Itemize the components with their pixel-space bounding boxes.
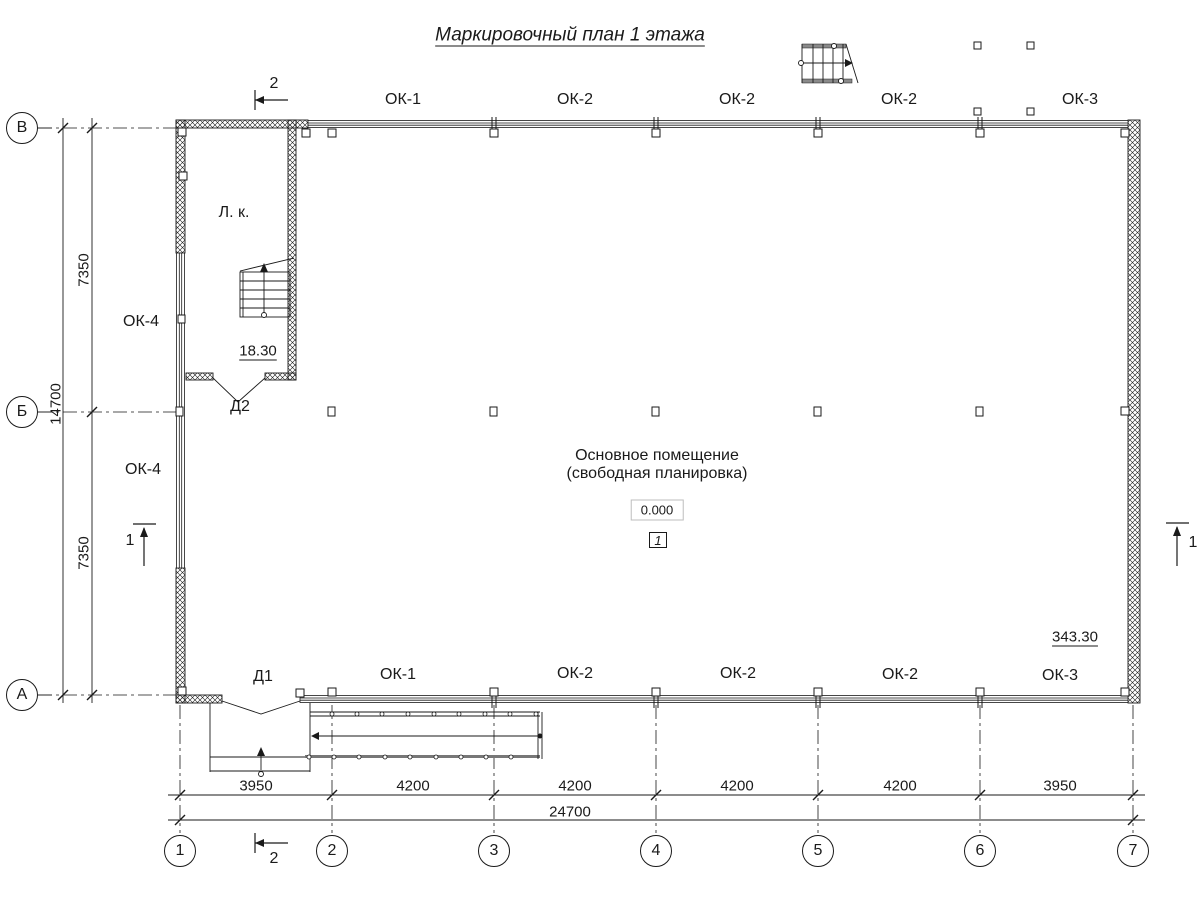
axis-bubble-6-label: 6	[976, 842, 985, 860]
window-label-top-5: ОК-3	[1062, 92, 1098, 108]
axis-bubble-1-label: 1	[176, 842, 185, 860]
dim-left-total: 14700	[49, 383, 64, 425]
window-label-bottom-1: ОК-1	[380, 667, 416, 683]
stair-room-area: 18.30	[239, 344, 277, 359]
axis-bubble-5-label: 5	[814, 842, 823, 860]
window-label-bottom-5: ОК-3	[1042, 668, 1078, 684]
axis-bubble-v-label: В	[17, 119, 28, 137]
dim-bottom-total: 24700	[549, 805, 591, 820]
drawing-title: Маркировочный план 1 этажа	[435, 26, 705, 45]
main-room-name-line2: (свободная планировка)	[567, 466, 748, 482]
main-room-name-line1: Основное помещение	[575, 448, 739, 464]
dim-bottom-1: 3950	[239, 779, 272, 794]
axis-bubble-4-label: 4	[652, 842, 661, 860]
axis-bubble-a-label: А	[17, 686, 28, 704]
axis-bubble-5: 5	[802, 835, 834, 867]
axis-bubble-2-label: 2	[328, 842, 337, 860]
window-label-top-1: ОК-1	[385, 92, 421, 108]
door-label-d1: Д1	[253, 669, 273, 685]
dim-bottom-5: 4200	[883, 779, 916, 794]
window-label-bottom-3: ОК-2	[720, 666, 756, 682]
column-markers	[176, 42, 1129, 697]
axis-bubble-a: А	[6, 679, 38, 711]
door-d1-swing	[222, 701, 300, 714]
window-label-left-1: ОК-4	[123, 314, 159, 330]
dim-bottom-2: 4200	[396, 779, 429, 794]
stair-detail-symbol	[799, 44, 859, 84]
axis-bubble-4: 4	[640, 835, 672, 867]
dim-bottom-4: 4200	[720, 779, 753, 794]
section-label-2-top: 2	[270, 76, 279, 92]
room-number: 1	[649, 532, 667, 548]
axis-bubble-3: 3	[478, 835, 510, 867]
elevation-mark: 0.000	[631, 500, 684, 521]
dim-left-1: 7350	[77, 253, 92, 286]
window-label-bottom-2: ОК-2	[557, 666, 593, 682]
axis-bubble-v: В	[6, 112, 38, 144]
window-label-left-2: ОК-4	[125, 462, 161, 478]
window-label-top-2: ОК-2	[557, 92, 593, 108]
axis-bubble-b: Б	[6, 396, 38, 428]
window-label-bottom-4: ОК-2	[882, 667, 918, 683]
window-label-top-3: ОК-2	[719, 92, 755, 108]
main-room-area: 343.30	[1052, 630, 1098, 645]
axis-bubble-7-label: 7	[1129, 842, 1138, 860]
stair-room-name: Л. к.	[219, 205, 250, 221]
section-label-1-right: 1	[1189, 535, 1198, 551]
section-label-1-left: 1	[126, 533, 135, 549]
axis-bubble-2: 2	[316, 835, 348, 867]
entrance-ramp	[305, 712, 543, 759]
axis-bubble-1: 1	[164, 835, 196, 867]
dim-bottom-3: 4200	[558, 779, 591, 794]
axis-bubble-6: 6	[964, 835, 996, 867]
dim-bottom-6: 3950	[1043, 779, 1076, 794]
dim-left-2: 7350	[77, 536, 92, 569]
window-mullions	[492, 117, 982, 708]
axis-bubble-7: 7	[1117, 835, 1149, 867]
staircase	[240, 258, 294, 318]
door-swings	[213, 378, 300, 714]
window-label-top-4: ОК-2	[881, 92, 917, 108]
section-label-2-bottom: 2	[270, 851, 279, 867]
floor-plan-canvas: Маркировочный план 1 этажа ОК-1 ОК-2 ОК-…	[0, 0, 1200, 900]
axis-bubble-3-label: 3	[490, 842, 499, 860]
door-label-d2: Д2	[230, 399, 250, 415]
axis-bubble-b-label: Б	[17, 403, 28, 421]
